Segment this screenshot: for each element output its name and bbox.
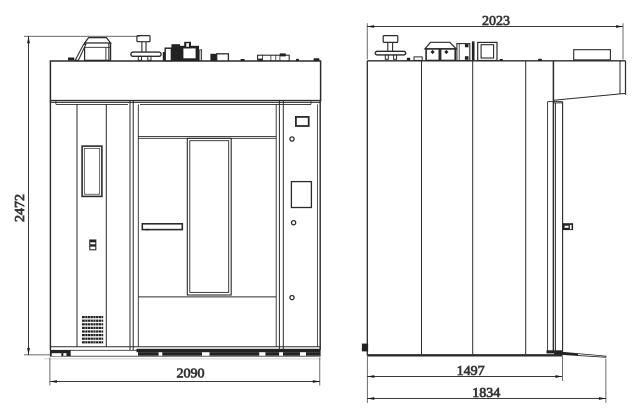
svg-text:1834: 1834 (472, 386, 500, 401)
svg-text:2472: 2472 (13, 194, 28, 222)
svg-text:2023: 2023 (482, 14, 510, 29)
svg-text:1497: 1497 (457, 364, 485, 379)
svg-text:2090: 2090 (177, 367, 205, 382)
